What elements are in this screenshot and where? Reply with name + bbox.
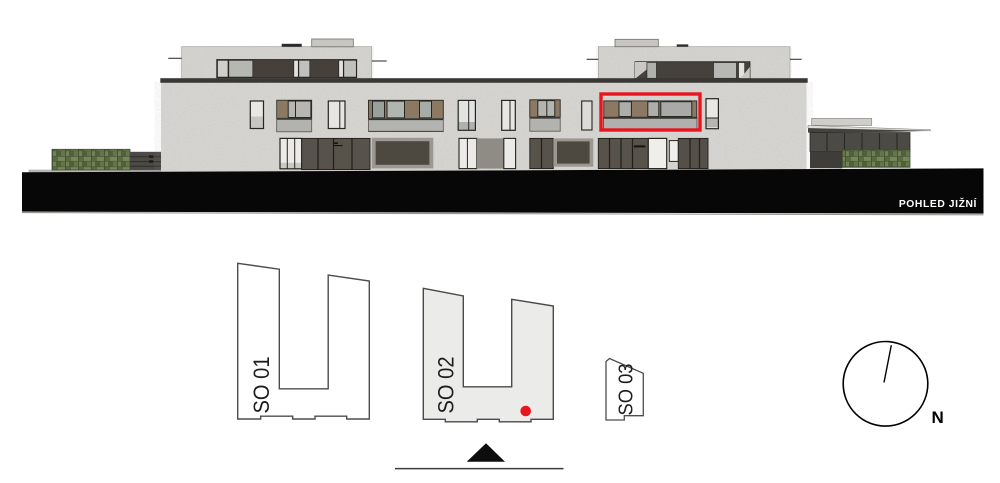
storefront-glazing (530, 138, 554, 168)
storefront-glazing (598, 138, 648, 168)
balcony-window (277, 100, 312, 132)
annex-parapet (812, 118, 872, 125)
glass-signage (334, 142, 338, 144)
compass-circle (843, 342, 928, 427)
left-hedge (52, 149, 130, 170)
drawing-canvas: POHLED JIŽNÍ SO 01 SO 02 SO 03 N (0, 0, 1000, 483)
annex-glazing (810, 133, 910, 152)
ground-band (22, 168, 984, 213)
building-so01-label: SO 01 (249, 357, 274, 414)
elevation-drawing: POHLED JIŽNÍ (22, 39, 984, 215)
window (502, 100, 516, 130)
balcony-window (369, 100, 444, 131)
right-hedge (842, 150, 910, 168)
window (458, 100, 475, 130)
window (328, 101, 345, 129)
ground-floor-windows (280, 138, 708, 170)
south-elevation-caption: POHLED JIŽNÍ (899, 197, 978, 210)
right-roof-vent (677, 44, 689, 46)
balcony-window (530, 100, 560, 131)
door-handle (634, 145, 646, 147)
north-label: N (932, 408, 944, 427)
selected-unit-dot[interactable] (520, 406, 531, 417)
entrance-triangle-icon (467, 443, 505, 461)
building-so03-label: SO 03 (616, 364, 638, 416)
window (250, 101, 263, 129)
framed-dark-window (553, 138, 593, 166)
roof-parapet-band (160, 78, 807, 83)
left-roof-box (312, 39, 354, 47)
annex-dark-wall (810, 152, 842, 169)
right-roof-box (615, 39, 658, 46)
left-penthouse-glazing (217, 60, 357, 78)
storefront-glazing (678, 138, 708, 168)
right-annex (808, 118, 931, 168)
left-roof-vent (282, 44, 302, 47)
highlighted-unit-window (603, 101, 697, 130)
window (706, 99, 718, 129)
window (582, 101, 592, 130)
right-penthouse-glazing (635, 62, 750, 79)
storefront-glazing (302, 138, 370, 169)
site-plan: SO 01 SO 02 SO 03 N (238, 263, 944, 468)
entrance-porch (459, 138, 516, 168)
framed-dark-window (372, 138, 434, 169)
building-so02-label: SO 02 (434, 357, 459, 414)
left-dark-wall (130, 152, 161, 170)
entry-door (280, 138, 302, 168)
compass: N (843, 342, 944, 428)
apartment-selector-page: POHLED JIŽNÍ SO 01 SO 02 SO 03 N (0, 0, 1000, 483)
